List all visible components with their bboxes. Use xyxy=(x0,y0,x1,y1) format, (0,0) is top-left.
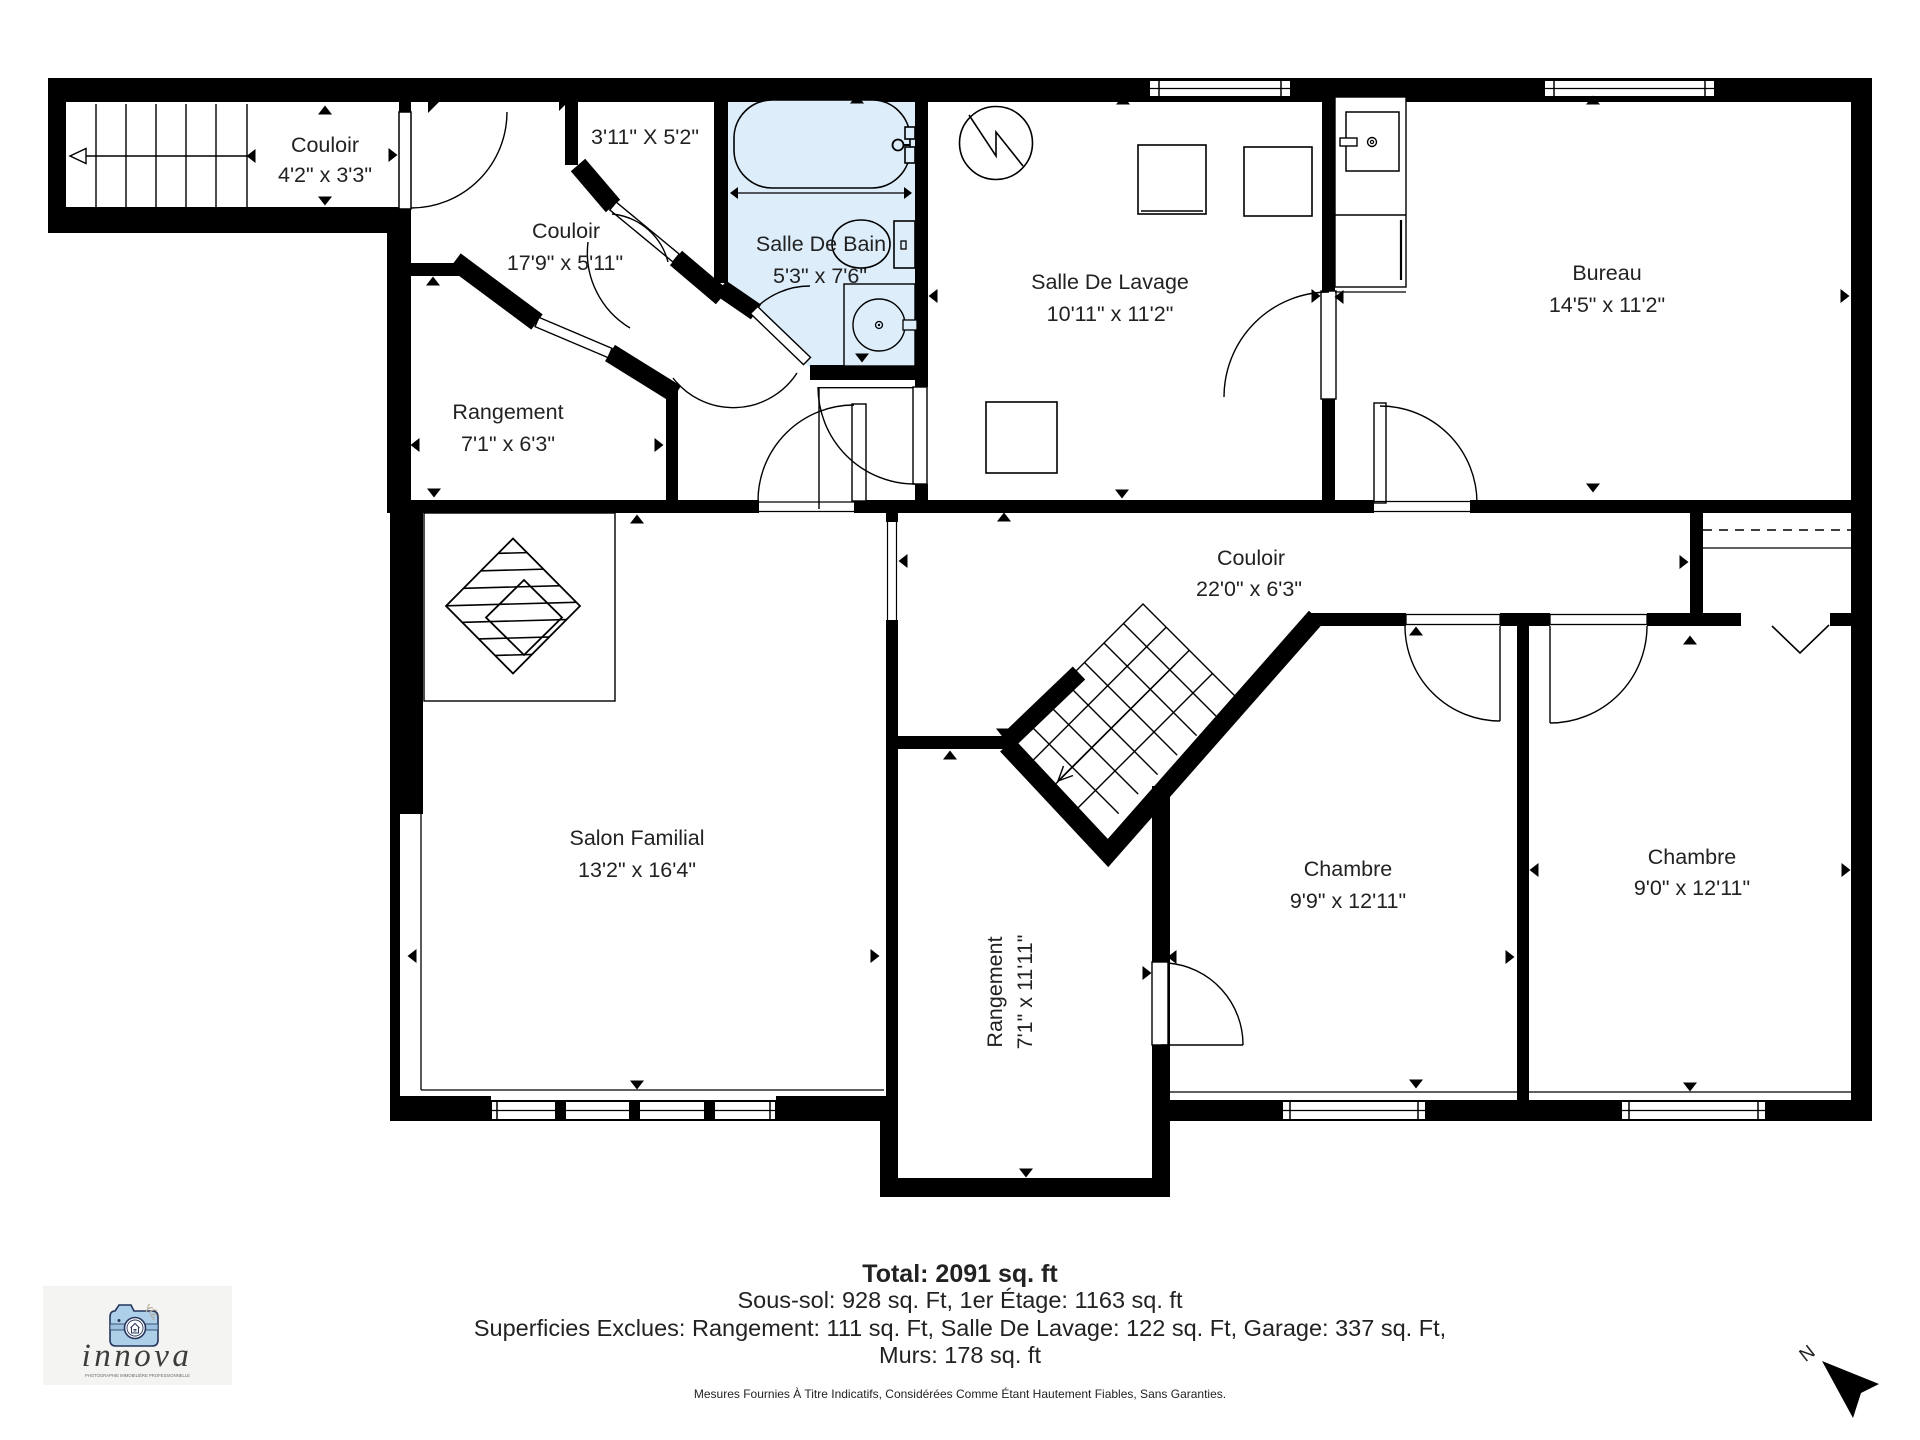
svg-text:4'2" x 3'3": 4'2" x 3'3" xyxy=(278,163,372,187)
svg-text:Superficies Exclues: Rangement: Superficies Exclues: Rangement: 111 sq. … xyxy=(474,1315,1446,1341)
svg-text:13'2" x 16'4": 13'2" x 16'4" xyxy=(578,858,696,882)
svg-text:14'5" x 11'2": 14'5" x 11'2" xyxy=(1549,293,1665,317)
svg-text:3'11" X 5'2": 3'11" X 5'2" xyxy=(591,125,699,149)
svg-text:Salle De Bain: Salle De Bain xyxy=(756,232,886,256)
svg-text:Total: 2091 sq. ft: Total: 2091 sq. ft xyxy=(862,1260,1058,1288)
svg-text:Chambre: Chambre xyxy=(1648,845,1736,869)
svg-text:Sous-sol: 928 sq. Ft, 1er Étag: Sous-sol: 928 sq. Ft, 1er Étage: 1163 sq… xyxy=(737,1287,1182,1313)
svg-text:9'0" x 12'11": 9'0" x 12'11" xyxy=(1634,876,1750,900)
svg-text:10'11" x 11'2": 10'11" x 11'2" xyxy=(1047,302,1174,326)
svg-text:Chambre: Chambre xyxy=(1304,857,1392,881)
svg-text:22'0" x 6'3": 22'0" x 6'3" xyxy=(1196,577,1302,601)
svg-text:Couloir: Couloir xyxy=(1217,546,1285,570)
svg-text:9'9" x 12'11": 9'9" x 12'11" xyxy=(1290,889,1406,913)
svg-text:17'9" x 5'11": 17'9" x 5'11" xyxy=(507,251,623,275)
svg-text:Rangement: Rangement xyxy=(452,400,563,424)
svg-text:Salon Familial: Salon Familial xyxy=(569,826,704,850)
svg-text:Salle De Lavage: Salle De Lavage xyxy=(1031,270,1189,294)
svg-text:Murs: 178 sq. ft: Murs: 178 sq. ft xyxy=(879,1342,1041,1368)
svg-text:Couloir: Couloir xyxy=(291,133,359,157)
svg-text:Bureau: Bureau xyxy=(1572,261,1641,285)
svg-text:Mesures Fournies À Titre Indic: Mesures Fournies À Titre Indicatifs, Con… xyxy=(694,1386,1226,1401)
svg-text:7'1" x 6'3": 7'1" x 6'3" xyxy=(461,432,555,456)
svg-text:innova: innova xyxy=(82,1338,193,1374)
svg-text:Couloir: Couloir xyxy=(532,219,600,243)
svg-text:5'3" x 7'6": 5'3" x 7'6" xyxy=(773,264,867,288)
svg-text:PHOTOGRAPHIE IMMOBILIÈRE PROFE: PHOTOGRAPHIE IMMOBILIÈRE PROFESSIONNELLE xyxy=(85,1372,190,1379)
svg-text:7'1" x 11'11": 7'1" x 11'11" xyxy=(1013,935,1037,1050)
svg-text:Rangement: Rangement xyxy=(983,936,1007,1047)
